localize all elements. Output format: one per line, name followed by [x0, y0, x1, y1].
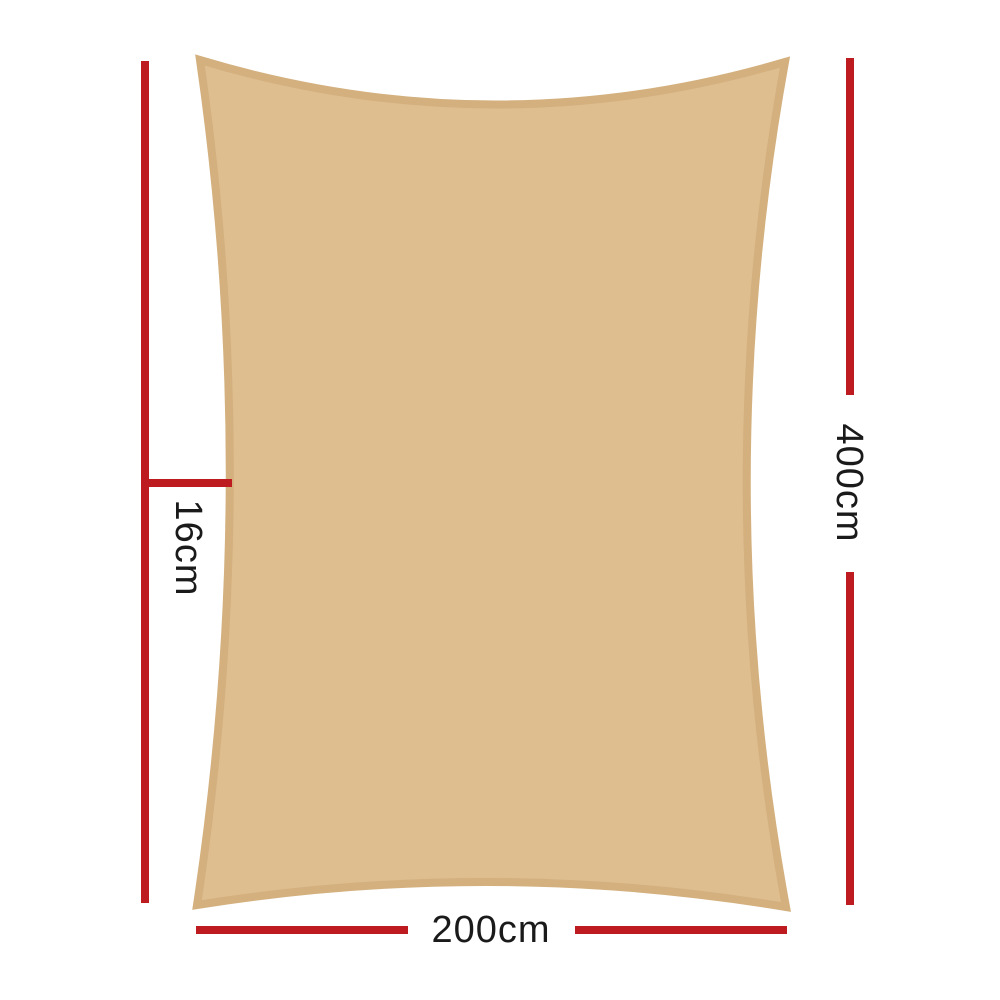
pocket-dimension-label: 16cm [167, 500, 209, 597]
shade-sail-dimension-diagram: 400cm 16cm 200cm [0, 0, 1000, 1000]
shade-sail-shape [197, 60, 786, 907]
diagram-svg: 400cm 16cm 200cm [0, 0, 1000, 1000]
height-dimension-label: 400cm [828, 423, 870, 542]
width-dimension-label: 200cm [431, 909, 550, 951]
